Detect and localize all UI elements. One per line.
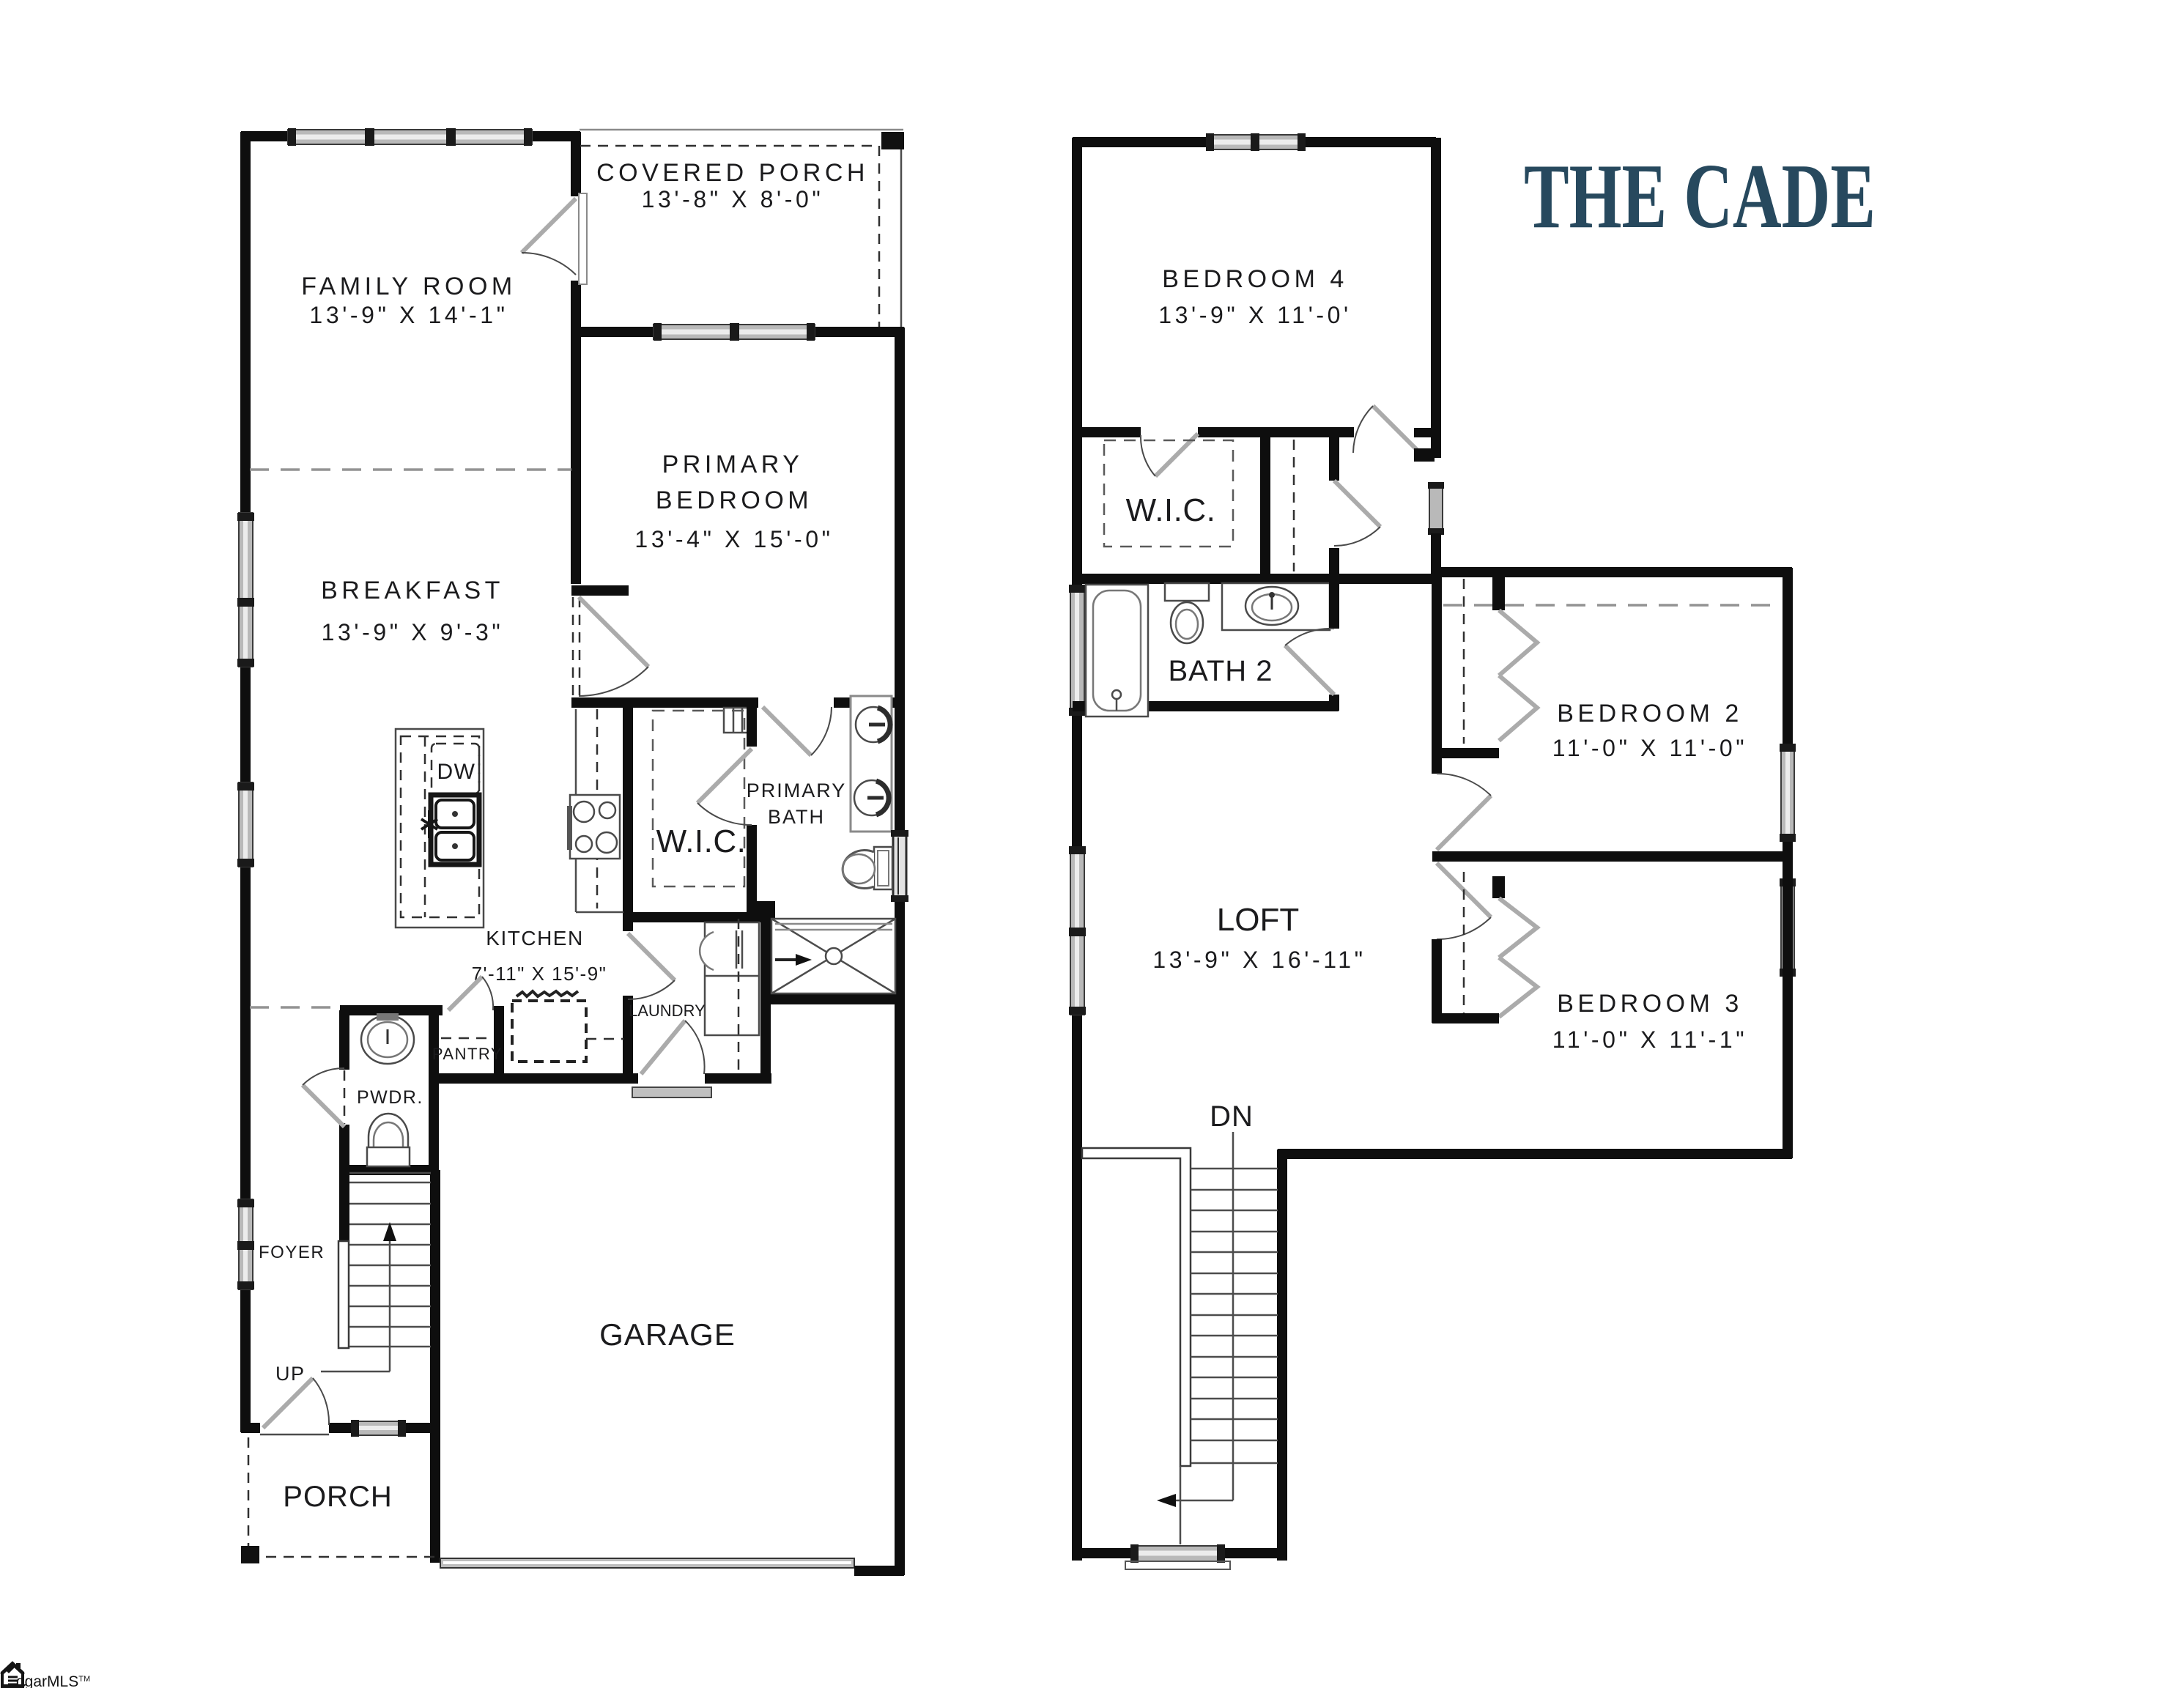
svg-text:11'-0" X 11'-1": 11'-0" X 11'-1" [1552, 1026, 1747, 1053]
svg-text:LAUNDRY: LAUNDRY [629, 1002, 706, 1020]
svg-text:BATH 2: BATH 2 [1168, 655, 1273, 687]
svg-text:PORCH: PORCH [283, 1481, 392, 1513]
svg-text:COVERED PORCH: COVERED PORCH [596, 159, 869, 187]
svg-text:PRIMARY: PRIMARY [747, 780, 847, 802]
svg-text:W.I.C.: W.I.C. [1126, 492, 1216, 528]
svg-text:DW: DW [437, 760, 476, 784]
svg-text:13'-9" X 16'-11": 13'-9" X 16'-11" [1152, 947, 1366, 973]
svg-text:13'-9" X 9'-3": 13'-9" X 9'-3" [322, 619, 504, 645]
svg-text:BATH: BATH [768, 806, 825, 828]
svg-text:13'-8" X 8'-0": 13'-8" X 8'-0" [642, 186, 824, 212]
svg-text:PWDR.: PWDR. [357, 1087, 423, 1108]
svg-text:W.I.C.: W.I.C. [656, 823, 747, 859]
svg-text:13'-9" X 14'-1": 13'-9" X 14'-1" [309, 302, 508, 328]
svg-text:LOFT: LOFT [1217, 902, 1299, 938]
svg-text:KITCHEN: KITCHEN [486, 927, 583, 949]
svg-text:UP: UP [275, 1363, 306, 1385]
svg-text:BEDROOM: BEDROOM [656, 486, 812, 514]
svg-text:BEDROOM 2: BEDROOM 2 [1557, 700, 1743, 728]
svg-text:BREAKFAST: BREAKFAST [321, 577, 504, 604]
svg-text:13'-4" X 15'-0": 13'-4" X 15'-0" [634, 526, 833, 552]
svg-text:BEDROOM 3: BEDROOM 3 [1557, 990, 1743, 1018]
svg-text:FAMILY ROOM: FAMILY ROOM [301, 273, 517, 300]
svg-text:THE CADE: THE CADE [1524, 146, 1876, 248]
svg-text:PANTRY: PANTRY [432, 1045, 503, 1063]
svg-text:FOYER: FOYER [259, 1243, 325, 1262]
svg-text:DN: DN [1210, 1100, 1254, 1133]
svg-text:13'-9" X 11'-0': 13'-9" X 11'-0' [1158, 302, 1352, 328]
svg-text:BEDROOM 4: BEDROOM 4 [1162, 265, 1348, 293]
svg-text:11'-0" X 11'-0": 11'-0" X 11'-0" [1552, 735, 1747, 761]
svg-text:PRIMARY: PRIMARY [662, 451, 804, 478]
svg-text:7'-11" X 15'-9": 7'-11" X 15'-9" [472, 963, 607, 985]
svg-text:GARAGE: GARAGE [599, 1317, 736, 1352]
